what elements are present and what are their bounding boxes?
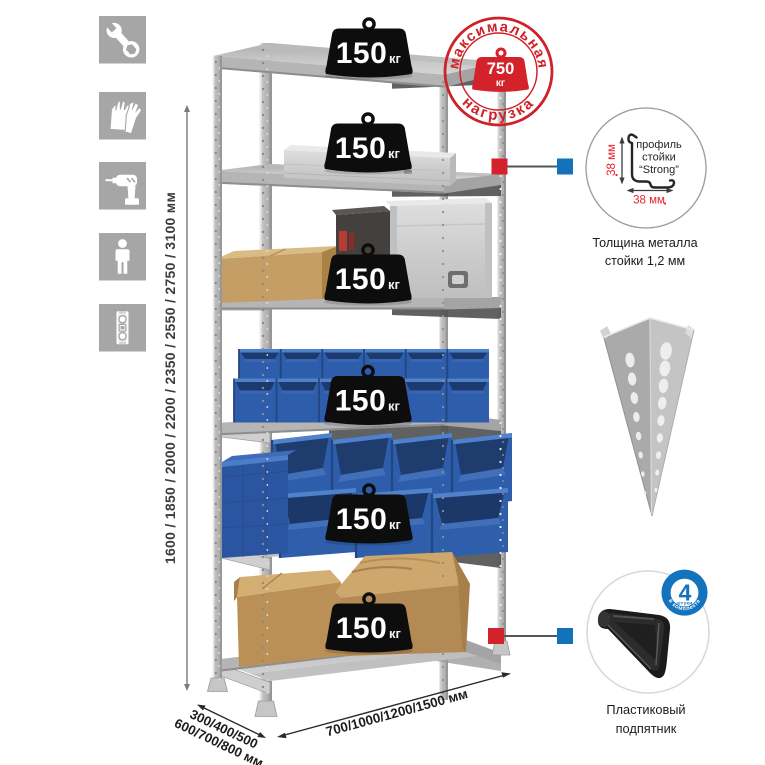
svg-text:подпятник: подпятник bbox=[616, 721, 677, 736]
svg-text:стойки 1,2 мм: стойки 1,2 мм bbox=[605, 254, 685, 268]
svg-text:стойки: стойки bbox=[642, 152, 676, 164]
svg-text:профиль: профиль bbox=[636, 139, 682, 151]
svg-text:1600 / 1850 / 2000 / 2200 / 23: 1600 / 1850 / 2000 / 2200 / 2350 / 2550 … bbox=[162, 192, 178, 564]
svg-text:кг: кг bbox=[496, 78, 505, 89]
svg-text:“Strong”: “Strong” bbox=[639, 164, 679, 176]
svg-text:Толщина металла: Толщина металла bbox=[592, 236, 697, 250]
svg-text:Пластиковый: Пластиковый bbox=[606, 702, 685, 717]
svg-text:38 мм: 38 мм bbox=[606, 144, 618, 176]
svg-text:750: 750 bbox=[487, 60, 515, 78]
svg-text:38 мм: 38 мм bbox=[633, 195, 665, 207]
